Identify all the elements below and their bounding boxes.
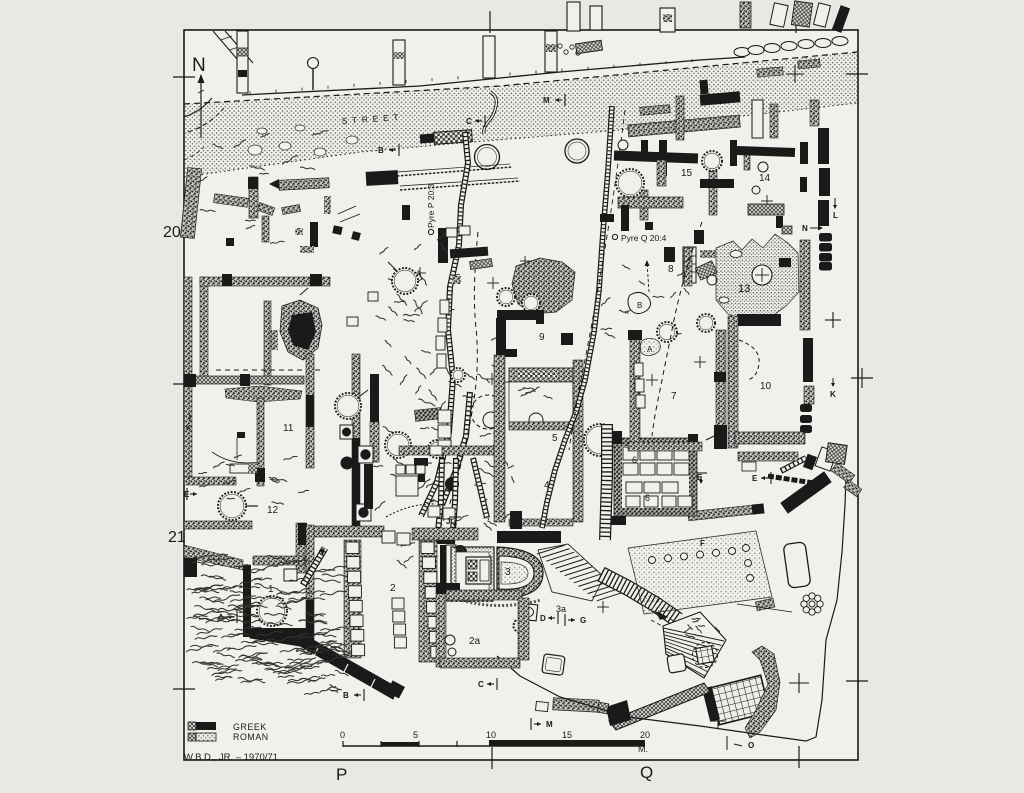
svg-text:B: B [378, 146, 384, 155]
svg-text:D: D [540, 614, 546, 623]
svg-text:2a: 2a [469, 636, 481, 647]
svg-text:3: 3 [505, 567, 511, 578]
svg-text:6: 6 [632, 455, 637, 465]
svg-text:C: C [478, 680, 484, 689]
svg-text:K: K [186, 425, 191, 432]
svg-text:N: N [192, 55, 206, 76]
svg-text:L: L [833, 211, 838, 220]
svg-text:8: 8 [668, 264, 674, 275]
svg-text:11: 11 [283, 423, 294, 434]
svg-text:1: 1 [268, 584, 274, 595]
svg-text:M: M [546, 720, 553, 729]
svg-text:9: 9 [539, 332, 545, 343]
svg-text:10: 10 [486, 730, 496, 740]
svg-text:B: B [637, 301, 642, 310]
svg-text:M.: M. [638, 744, 648, 754]
svg-text:14: 14 [759, 173, 771, 184]
svg-text:5: 5 [413, 730, 418, 740]
svg-text:O: O [718, 437, 724, 446]
svg-text:5: 5 [552, 433, 558, 444]
svg-text:15: 15 [681, 168, 693, 179]
svg-text:20: 20 [640, 730, 650, 740]
svg-text:O: O [748, 741, 754, 750]
svg-text:Q: Q [640, 763, 653, 782]
svg-text:0: 0 [340, 730, 345, 740]
svg-text:13: 13 [738, 283, 750, 295]
svg-text:G: G [580, 616, 586, 625]
svg-text:A: A [647, 345, 653, 354]
svg-text:M: M [543, 96, 550, 105]
svg-text:J: J [446, 517, 450, 526]
svg-text:7: 7 [671, 391, 677, 402]
svg-text:Pyre Q 20:4: Pyre Q 20:4 [621, 233, 667, 243]
svg-text:15: 15 [562, 730, 572, 740]
svg-text:GREEK: GREEK [233, 722, 267, 732]
svg-text:F: F [700, 539, 705, 548]
svg-text:K: K [830, 390, 836, 399]
svg-text:Pyre P 20:3: Pyre P 20:3 [426, 183, 436, 228]
svg-text:21: 21 [168, 529, 186, 546]
svg-text:B: B [343, 691, 349, 700]
svg-text:ROMAN: ROMAN [233, 732, 269, 742]
svg-text:W.B.D., JR. – 1970/71: W.B.D., JR. – 1970/71 [184, 752, 278, 763]
svg-text:N: N [802, 224, 808, 233]
svg-text:C: C [466, 117, 472, 126]
svg-text:P: P [336, 765, 347, 784]
svg-text:2: 2 [390, 583, 396, 594]
svg-text:12: 12 [267, 505, 279, 516]
svg-text:6: 6 [645, 493, 650, 503]
svg-text:20: 20 [163, 224, 181, 241]
svg-text:10: 10 [760, 381, 772, 392]
svg-text:E: E [752, 474, 758, 483]
